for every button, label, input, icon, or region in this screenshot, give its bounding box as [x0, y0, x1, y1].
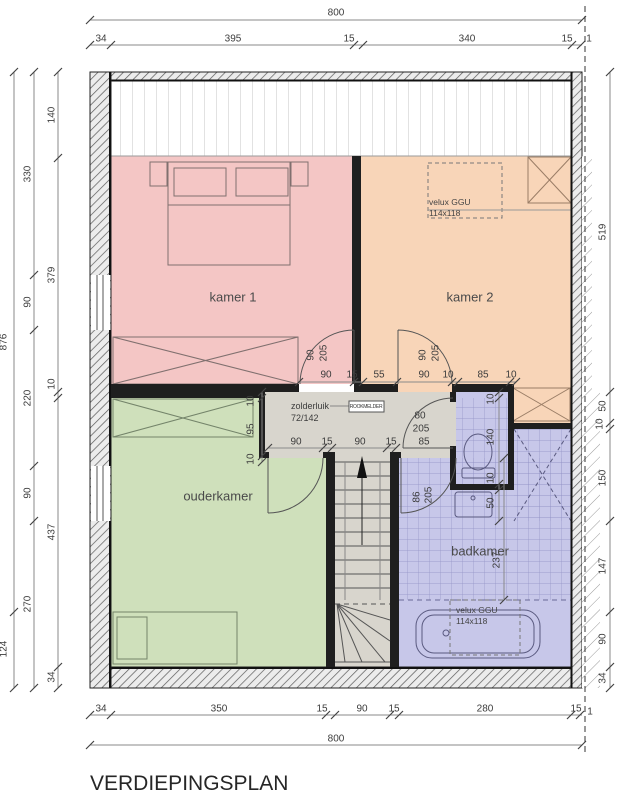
dim-bottom-5: 280 — [477, 704, 494, 715]
dim-top-2: 15 — [343, 34, 354, 45]
dim-left-inner-0: 140 — [47, 107, 58, 124]
zolderluik-label-line1: zolderluik — [291, 401, 329, 411]
zolderluik-label-line2: 72/142 — [291, 413, 319, 423]
dim-door-wc-h: 205 — [413, 424, 430, 435]
dim-door-bad-w: 86 — [412, 491, 423, 502]
dim-top-3: 340 — [459, 34, 476, 45]
dim-left-mid-4: 270 — [23, 596, 34, 613]
room-label-kamer1: kamer 1 — [210, 290, 257, 305]
dim-door-k1-w: 90 — [306, 349, 317, 360]
dim-nook-0: 10 — [486, 393, 497, 404]
dim-hall-bottom-0: 90 — [290, 437, 301, 448]
dim-nook-1: 140 — [486, 429, 497, 446]
dim-bottom-3: 90 — [356, 704, 367, 715]
dim-left-inner-2: 10 — [47, 378, 58, 389]
dim-left-outer-0: 876 — [0, 334, 10, 351]
dim-right-1: 50 — [598, 400, 609, 411]
dim-right-0: 519 — [598, 224, 609, 241]
dim-left-inner-1: 379 — [47, 267, 58, 284]
floor-plan-drawing — [0, 0, 630, 800]
dim-hall-bottom-1: 15 — [321, 437, 332, 448]
dim-top-5: 1 — [586, 34, 592, 45]
dim-door-k2-h: 205 — [431, 345, 442, 362]
dim-top-total: 800 — [328, 8, 345, 19]
dim-right-6: 34 — [598, 672, 609, 683]
dim-hall-top-1: 15 — [346, 370, 357, 381]
dim-door-k2-w: 90 — [418, 349, 429, 360]
dim-nook-3: 50 — [486, 497, 497, 508]
dim-hall-top-6: 10 — [505, 370, 516, 381]
room-label-ouderkamer: ouderkamer — [183, 489, 252, 504]
dim-left-mid-0: 330 — [23, 166, 34, 183]
kneewall-strip — [111, 81, 571, 156]
velux-badkamer-line2: 114x118 — [456, 616, 487, 626]
dim-bottom-1: 350 — [211, 704, 228, 715]
dim-bottom-7: 1 — [587, 707, 593, 718]
room-label-badkamer: badkamer — [451, 544, 509, 559]
dim-door-wc-w: 80 — [414, 411, 425, 422]
dim-hall-top-2: 55 — [373, 370, 384, 381]
dim-right-4: 147 — [598, 558, 609, 575]
dim-hall-left-1: 95 — [246, 423, 257, 434]
dim-bottom-0: 34 — [95, 704, 106, 715]
dim-hall-bottom-3: 15 — [385, 437, 396, 448]
dim-hall-top-4: 10 — [442, 370, 453, 381]
velux-kamer2-line1: velux GGU — [429, 197, 471, 207]
dim-hall-top-5: 85 — [477, 370, 488, 381]
dim-left-mid-2: 220 — [23, 390, 34, 407]
floor-plan-page: 800 34 395 15 340 15 1 34 350 15 90 15 2… — [0, 0, 630, 800]
dim-bottom-2: 15 — [316, 704, 327, 715]
dim-right-5: 90 — [598, 633, 609, 644]
dim-top-0: 34 — [95, 34, 106, 45]
dim-bottom-total: 800 — [328, 734, 345, 745]
dim-hall-left-0: 10 — [246, 395, 257, 406]
dim-door-bad-h: 205 — [424, 487, 435, 504]
dim-left-mid-3: 90 — [23, 487, 34, 498]
dim-hall-top-0: 90 — [320, 370, 331, 381]
dim-top-4: 15 — [561, 34, 572, 45]
velux-kamer2-line2: 114x118 — [429, 208, 460, 218]
dim-nook-2: 10 — [486, 472, 497, 483]
velux-badkamer-line1: velux GGU — [456, 605, 498, 615]
dim-left-mid-1: 90 — [23, 296, 34, 307]
dim-left-inner-3: 437 — [47, 524, 58, 541]
dim-bottom-6: 15 — [570, 704, 581, 715]
dim-door-wc-85: 85 — [418, 437, 429, 448]
dim-right-3: 150 — [598, 470, 609, 487]
dim-hall-top-3: 90 — [418, 370, 429, 381]
room-label-kamer2: kamer 2 — [447, 290, 494, 305]
dim-bottom-4: 15 — [388, 704, 399, 715]
dim-top-1: 395 — [225, 34, 242, 45]
dim-hall-bottom-2: 90 — [354, 437, 365, 448]
smoke-detector-label: ROOKMELDER — [350, 404, 383, 410]
dim-left-outer-1: 124 — [0, 641, 10, 658]
dim-door-k1-h: 205 — [319, 345, 330, 362]
page-title: VERDIEPINGSPLAN — [90, 772, 288, 796]
dim-hall-left-2: 10 — [246, 453, 257, 464]
dim-left-inner-4: 34 — [47, 671, 58, 682]
dim-right-2: 10 — [595, 418, 606, 429]
